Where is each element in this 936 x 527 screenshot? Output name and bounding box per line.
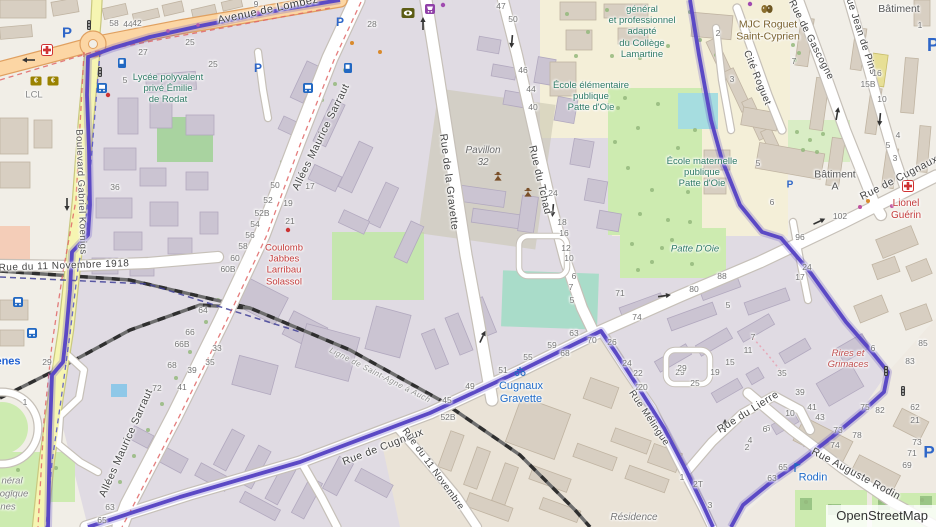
tree-icon — [132, 454, 136, 458]
poi-dot-icon — [350, 41, 354, 45]
building — [560, 2, 596, 20]
tree-icon — [686, 190, 690, 194]
tree-icon — [605, 8, 609, 12]
traffic-light-icon — [88, 21, 90, 23]
parking-icon: P — [927, 35, 936, 55]
building — [145, 71, 196, 92]
building — [96, 198, 132, 218]
bus-icon — [13, 297, 23, 307]
poi-dot-icon — [441, 3, 445, 7]
tree-icon — [565, 12, 569, 16]
map-viewport[interactable]: PPPPPP€€ Avenue de LombezAllées Maurice … — [0, 0, 936, 527]
building — [186, 115, 214, 135]
bank-icon: € — [48, 77, 59, 86]
bus-icon — [29, 335, 31, 337]
landuse-area — [0, 226, 30, 264]
poi-dot-icon — [866, 199, 870, 203]
tree-icon — [793, 58, 797, 62]
bus-icon — [99, 85, 105, 89]
eye-icon — [407, 12, 410, 15]
tree-icon — [797, 51, 801, 55]
tree-icon — [650, 188, 654, 192]
fuel-icon — [118, 58, 126, 68]
theater-masks-icon — [761, 5, 767, 13]
traffic-light-icon — [99, 74, 101, 76]
tree-icon — [623, 96, 627, 100]
tree-icon — [920, 498, 924, 502]
dot-icon — [378, 50, 382, 54]
parking-icon: P — [787, 180, 794, 191]
tree-icon — [10, 490, 14, 494]
tree-icon — [626, 166, 630, 170]
theater-masks-icon — [763, 7, 764, 8]
dot-icon — [866, 199, 870, 203]
traffic-icon — [884, 366, 888, 376]
tree-icon — [146, 428, 150, 432]
bus-icon — [103, 90, 105, 92]
building — [604, 4, 648, 18]
bus-icon — [33, 335, 35, 337]
traffic-light-icon — [885, 367, 887, 369]
poi-dot-icon — [226, 17, 230, 21]
oneway-arrow-icon — [512, 35, 513, 43]
bus-icon — [309, 90, 311, 92]
bus-icon — [27, 328, 37, 338]
tree-icon — [670, 238, 674, 242]
poi-dot-icon — [378, 50, 382, 54]
tree-icon — [118, 480, 122, 484]
parking-icon: P — [923, 443, 934, 462]
traffic-icon — [87, 20, 91, 30]
building — [597, 210, 622, 232]
building — [150, 202, 178, 226]
bus-icon — [29, 330, 35, 334]
traffic-icon — [98, 67, 102, 77]
building — [150, 98, 172, 128]
oneway-arrow-icon — [553, 204, 554, 212]
dot-icon — [350, 41, 354, 45]
cart-icon — [428, 11, 430, 13]
bus-icon — [305, 85, 311, 89]
building — [0, 118, 28, 154]
pharmacy-icon — [42, 45, 53, 56]
tree-icon — [808, 138, 812, 142]
tree-icon — [815, 150, 819, 154]
parking-icon: P — [254, 61, 262, 75]
building — [618, 28, 648, 44]
attribution-bar: OpenStreetMap — [826, 505, 936, 527]
pharmacy-icon — [904, 185, 912, 188]
traffic-icon — [901, 386, 905, 396]
traffic-light-icon — [88, 24, 90, 26]
tree-icon — [625, 40, 629, 44]
pharmacy-icon — [43, 49, 51, 52]
cart-icon — [431, 11, 433, 13]
building — [550, 62, 576, 96]
building — [704, 178, 726, 194]
bus-icon — [15, 299, 21, 303]
building — [168, 238, 192, 254]
traffic-light-icon — [902, 393, 904, 395]
parking-icon: P — [923, 443, 934, 462]
building — [140, 168, 166, 186]
fuel-icon — [120, 60, 124, 64]
building — [104, 148, 136, 170]
tree-icon — [636, 268, 640, 272]
pharmacy-icon — [903, 181, 914, 192]
building — [554, 96, 578, 123]
building — [0, 330, 24, 346]
tree-icon — [638, 56, 642, 60]
poi-dot-icon — [286, 228, 290, 232]
tree-icon — [801, 148, 805, 152]
tree-icon — [688, 220, 692, 224]
tree-icon — [636, 126, 640, 130]
tree-icon — [690, 262, 694, 266]
map-canvas: PPPPPP€€ — [0, 0, 936, 527]
traffic-light-icon — [902, 387, 904, 389]
traffic-light-icon — [99, 68, 101, 70]
tree-icon — [656, 102, 660, 106]
dot-icon — [196, 23, 200, 27]
parking-icon: P — [787, 180, 794, 191]
poi-dot-icon — [166, 29, 170, 33]
tree-icon — [616, 106, 620, 110]
building — [186, 172, 208, 190]
building — [114, 232, 142, 250]
parking-icon: P — [336, 15, 344, 29]
building — [0, 0, 46, 18]
parking-icon: P — [927, 35, 936, 55]
parking-icon: P — [254, 61, 262, 75]
tree-icon — [333, 82, 337, 86]
tree-icon — [795, 130, 799, 134]
building — [200, 212, 218, 234]
poi-dot-icon — [106, 93, 110, 97]
building — [34, 120, 52, 148]
tree-icon — [174, 376, 178, 380]
landuse-area — [111, 384, 127, 397]
traffic-light-icon — [99, 71, 101, 73]
theater-masks-icon — [768, 7, 769, 8]
landuse-area — [620, 228, 726, 278]
tree-icon — [646, 20, 650, 24]
bank-icon: € — [31, 77, 42, 86]
traffic-light-icon — [885, 370, 887, 372]
poi-dot-icon — [196, 23, 200, 27]
dot-icon — [256, 11, 260, 15]
building — [584, 178, 608, 203]
eye-icon — [402, 8, 415, 18]
theater-masks-icon — [767, 5, 773, 13]
tree-icon — [188, 350, 192, 354]
building — [0, 162, 30, 188]
poi-dot-icon — [256, 11, 260, 15]
traffic-light-icon — [88, 27, 90, 29]
poi-dot-icon — [748, 2, 752, 6]
tree-icon — [574, 54, 578, 58]
tree-icon — [160, 402, 164, 406]
tree-icon — [204, 320, 208, 324]
dot-icon — [226, 17, 230, 21]
dot-icon — [441, 3, 445, 7]
building — [914, 0, 930, 26]
tree-icon — [666, 44, 670, 48]
tree-icon — [676, 146, 680, 150]
tree-icon — [660, 246, 664, 250]
dot-icon — [106, 93, 110, 97]
oneway-arrow-icon — [880, 113, 881, 121]
parking-icon: P — [336, 15, 344, 29]
bank-icon: € — [51, 78, 55, 85]
tree-icon — [666, 218, 670, 222]
tree-icon — [791, 43, 795, 47]
bank-icon: € — [34, 78, 38, 85]
fuel-icon — [344, 63, 352, 73]
tree-icon — [821, 132, 825, 136]
tree-icon — [586, 30, 590, 34]
tree-icon — [54, 466, 58, 470]
tree-icon — [638, 212, 642, 216]
poi-dot-icon — [890, 204, 894, 208]
bus-icon — [15, 304, 17, 306]
roundabout-island — [89, 40, 98, 49]
cart-icon — [425, 4, 435, 14]
dot-icon — [890, 204, 894, 208]
building — [118, 98, 138, 134]
oneway-arrow-icon — [658, 296, 666, 297]
parking-icon: P — [62, 25, 72, 42]
fuel-icon — [346, 65, 350, 69]
dot-icon — [858, 205, 862, 209]
bus-icon — [99, 90, 101, 92]
traffic-light-icon — [902, 390, 904, 392]
tree-icon — [613, 140, 617, 144]
poi-dot-icon — [858, 205, 862, 209]
bus-icon — [97, 83, 107, 93]
bus-icon — [305, 90, 307, 92]
attribution-link[interactable]: OpenStreetMap — [836, 508, 928, 523]
bus-icon — [303, 83, 313, 93]
dot-icon — [286, 228, 290, 232]
traffic-light-icon — [885, 373, 887, 375]
tree-icon — [650, 260, 654, 264]
tree-icon — [610, 54, 614, 58]
parking-icon: P — [62, 25, 72, 42]
dot-icon — [166, 29, 170, 33]
building — [570, 138, 594, 167]
tree-icon — [630, 242, 634, 246]
bus-icon — [19, 304, 21, 306]
tree-icon — [706, 248, 710, 252]
tree-icon — [804, 500, 808, 504]
dot-icon — [748, 2, 752, 6]
building — [0, 25, 32, 40]
tree-icon — [693, 128, 697, 132]
tree-icon — [16, 468, 20, 472]
